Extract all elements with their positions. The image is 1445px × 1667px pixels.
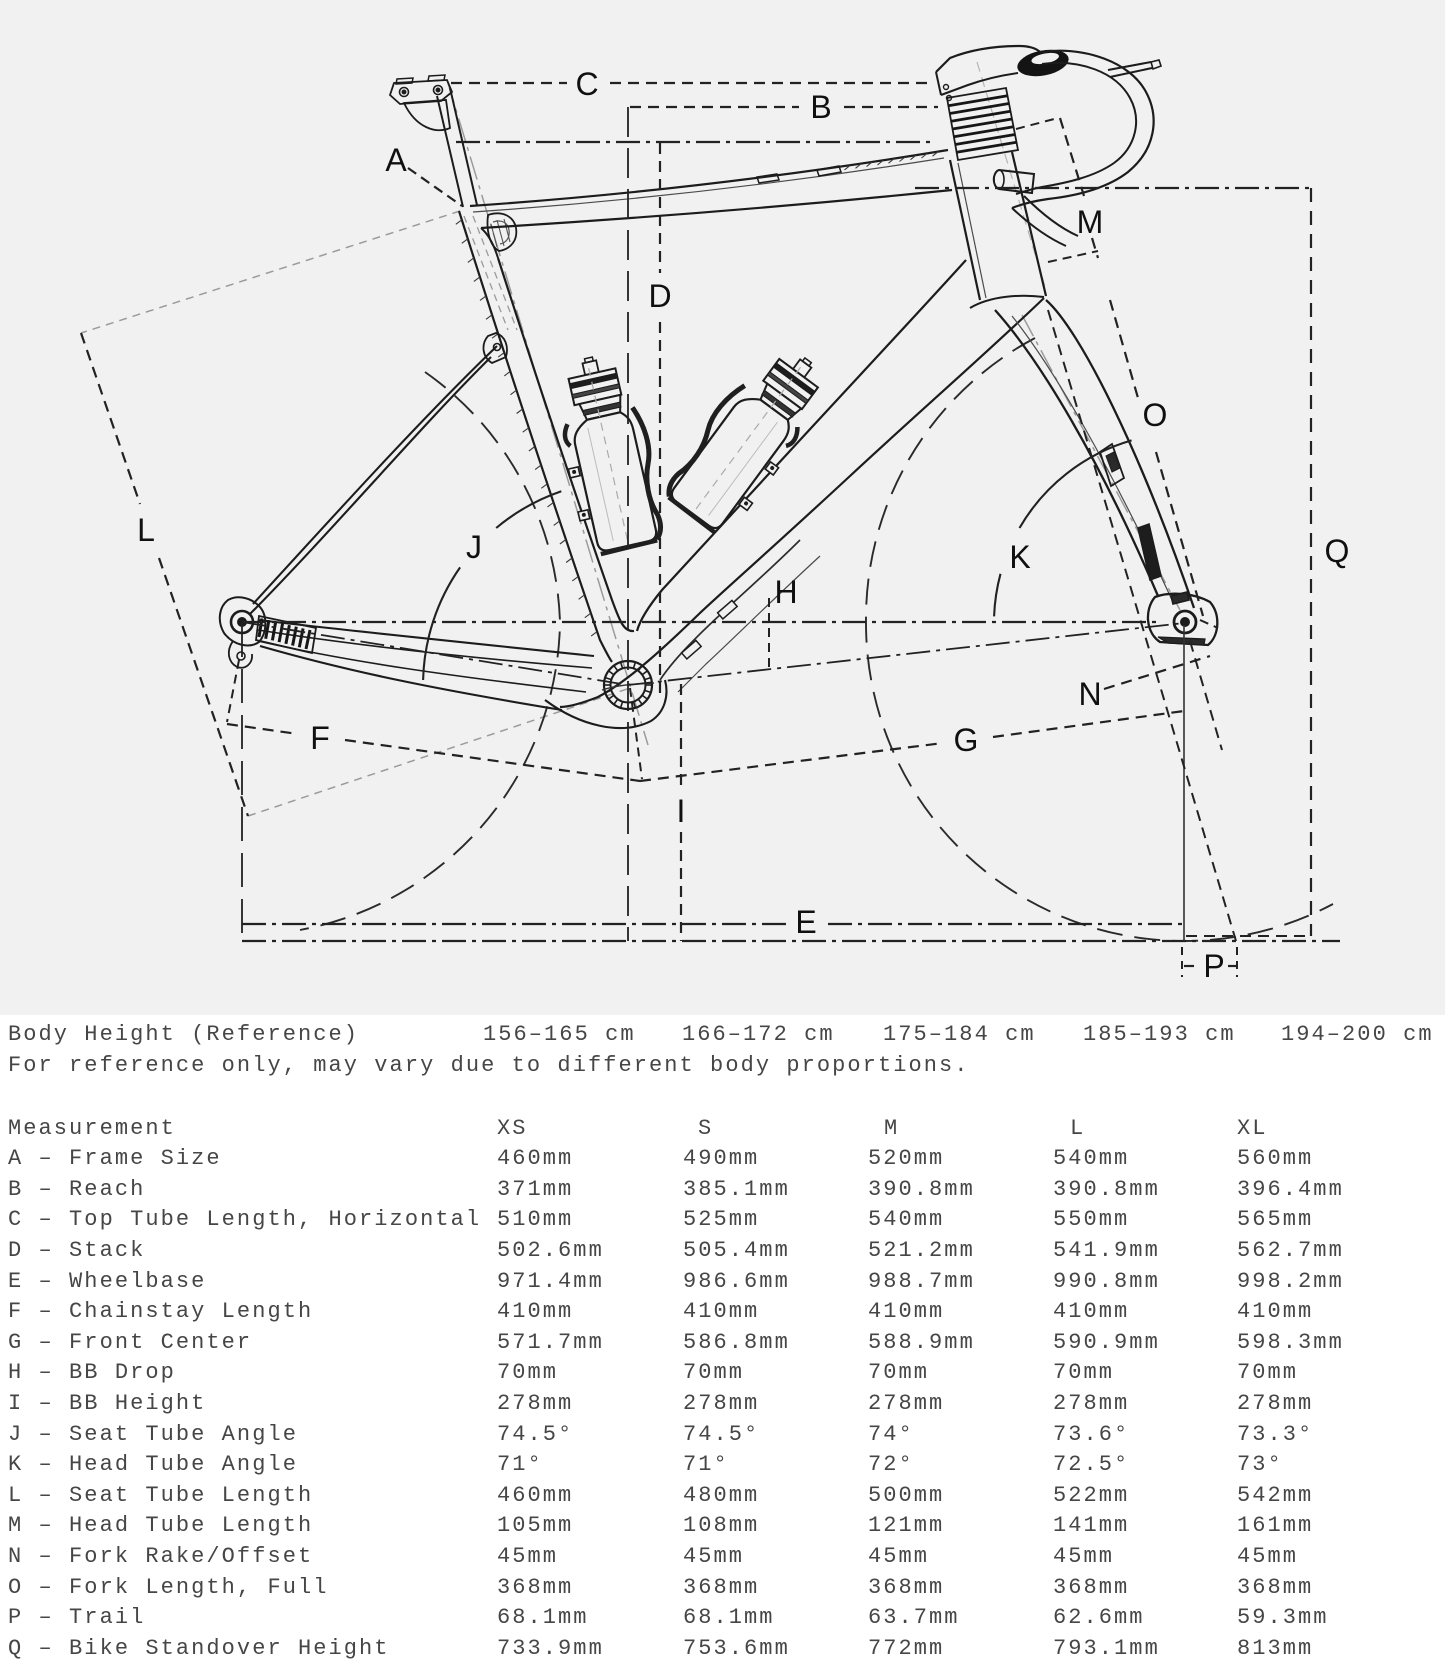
svg-text:I: I [677,793,686,829]
svg-text:C: C [575,66,598,102]
svg-text:K: K [1009,539,1030,575]
svg-text:D: D [648,278,671,314]
svg-text:O: O [1143,397,1168,433]
svg-text:G: G [954,722,979,758]
svg-text:F: F [310,720,330,756]
svg-text:J: J [466,529,482,565]
svg-text:P: P [1203,948,1224,984]
svg-text:A: A [385,142,407,178]
svg-text:H: H [774,574,797,610]
svg-text:M: M [1077,204,1104,240]
svg-text:Q: Q [1325,533,1350,569]
svg-text:E: E [795,904,816,940]
svg-text:N: N [1078,676,1101,712]
svg-text:L: L [137,512,155,548]
svg-text:B: B [810,89,831,125]
